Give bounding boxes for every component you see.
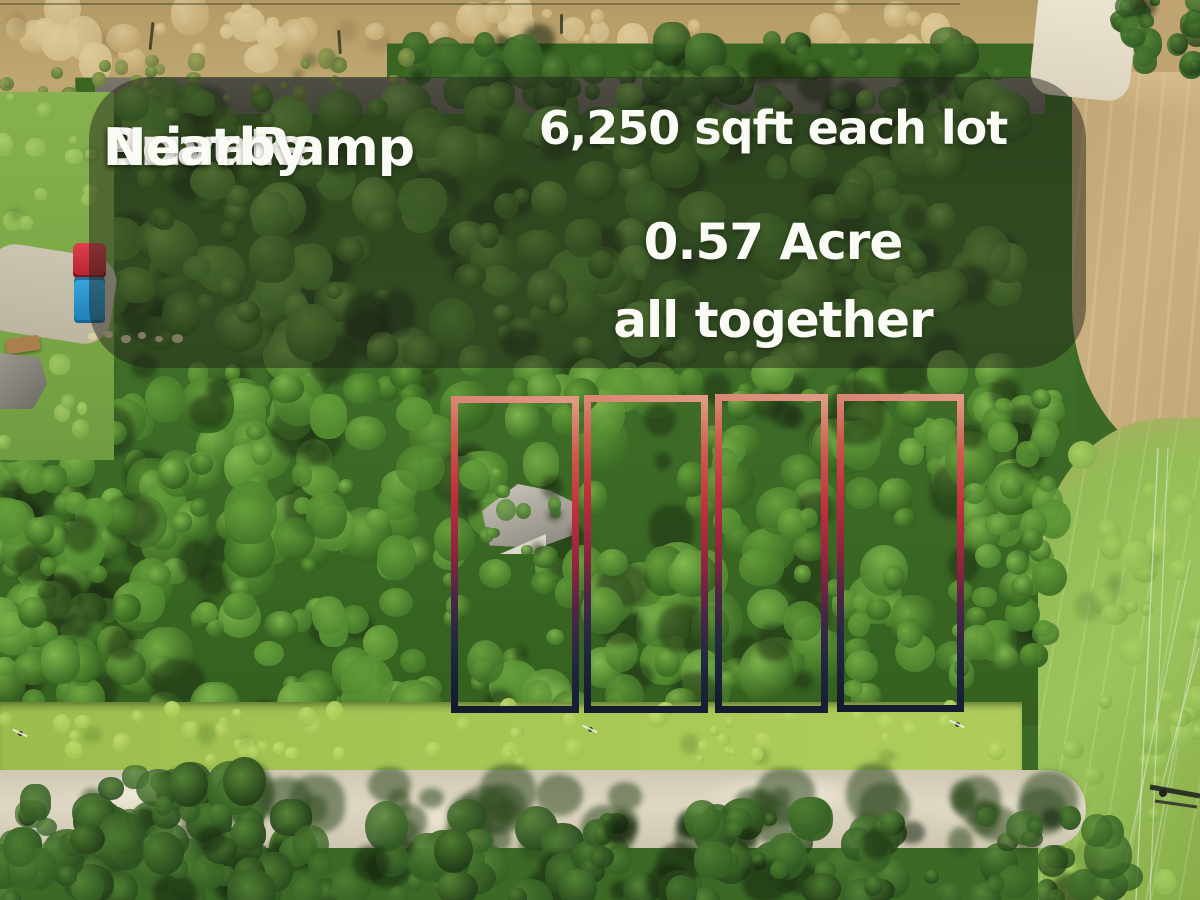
banner-line-acre: 0.57 Acre (475, 203, 1071, 281)
info-banner: Private Boat Ramp Nearby 6,250 sqft each… (89, 77, 1086, 368)
lot-outline-3 (715, 394, 828, 713)
lot-outline-1 (451, 396, 579, 713)
lot-outline-4 (837, 394, 964, 712)
utility-pole (588, 727, 593, 732)
banner-line-all-together: all together (475, 281, 1071, 359)
banner-right-text: 6,250 sqft each lot 0.57 Acre all togeth… (475, 89, 1071, 359)
banner-line-nearby: Nearby (103, 109, 308, 187)
sandy-road-bottom (0, 770, 1086, 848)
banner-line-sqft: 6,250 sqft each lot (475, 89, 1071, 167)
lot-outline-2 (584, 395, 708, 713)
utility-pole (18, 731, 23, 736)
aerial-photo: Private Boat Ramp Nearby 6,250 sqft each… (0, 0, 1200, 900)
utility-pole (955, 722, 960, 727)
